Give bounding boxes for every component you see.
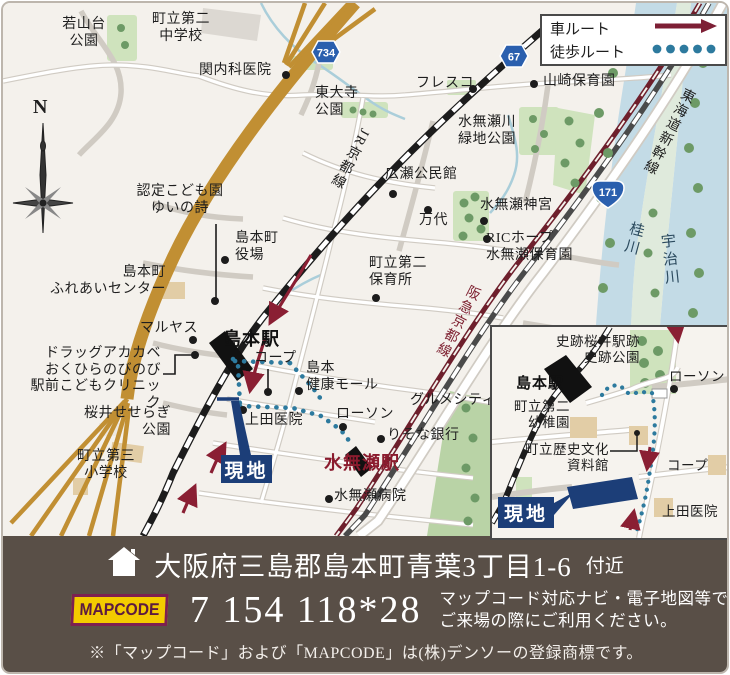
svg-text:67: 67 [508,52,520,64]
inset-shimamoto-station-label: 島本駅 [516,376,564,394]
inset-place-shiseki-park: 史跡桜井駅跡 史跡公園 [526,334,640,366]
place-maruyasu: マルヤス [140,321,198,338]
place-coop: コープ [254,351,297,368]
svg-text:734: 734 [317,48,336,60]
place-hirose-hall: 広瀬公民館 [385,167,458,184]
inset-place-rekishi-museum: 町立歴史文化 資料館 [502,442,609,474]
place-ueda-clinic: 上田医院 [245,413,303,430]
place-minase-hospital: 水無瀬病院 [334,489,407,506]
mapcode-usage-line2: ご来場の際にご利用ください。 [440,611,678,630]
route-shield-734: 734 [311,40,341,69]
compass-icon [13,123,73,233]
inset-site-label-box: 現地 [498,497,554,528]
minase-station-label: 水無瀬駅 [324,453,400,474]
place-daini-nursery: 町立第二 保育所 [369,256,427,289]
legend-car-label: 車ルート [550,18,610,39]
place-ric-hope-nursery: RICホープ 水無瀬保育園 [486,231,573,264]
mapcode-usage-line1: マップコード対応ナビ・電子地図等で [440,589,729,608]
trademark-note: ※「マップコード」および「MAPCODE」は(株)デンソーの登録商標です。 [3,639,729,663]
place-daisan-elementary: 町立第三 小学校 [67,449,145,482]
address-text: 大阪府三島郡島本町青葉3丁目1-6 [154,545,572,584]
mapcode-row: MAPCODE 7 154 118*28 マップコード対応ナビ・電子地図等でご来… [67,588,729,633]
place-yamazaki-nursery: 山崎保育園 [543,74,616,91]
place-minase-shrine: 水無瀬神宮 [480,198,553,215]
house-icon [108,547,140,582]
site-label-box: 現地 [221,455,272,483]
route-shield-67: 67 [499,44,529,73]
place-mandai: 万代 [419,213,448,230]
place-wakayamadai-park: 若山台 公園 [53,17,115,50]
map-frame: 734 67 171 N JR京都線 阪急京都線 東海道新幹線 桂川 宇治川 若… [1,1,729,674]
place-town-hall: 島本町 役場 [235,231,279,264]
shimamoto-station-label: 島本駅 [223,329,280,350]
compass-label: N [33,96,48,120]
mapcode-usage-text: マップコード対応ナビ・電子地図等でご来場の際にご利用ください。 [440,588,729,633]
place-gourmet-city: グルメシティ [410,393,496,410]
place-fresco: フレスコ [416,76,474,93]
route-legend: 車ルート 徒歩ルート [540,14,727,66]
svg-text:171: 171 [599,187,617,199]
place-minasegawa-green-park: 水無瀬川 緑地公園 [458,115,516,148]
place-risona-bank: りそな銀行 [387,428,460,445]
place-daini-junior-high: 町立第二 中学校 [141,12,221,45]
inset-place-lawson: ローソン [669,369,725,385]
walk-route-dots-icon [651,43,717,60]
main-map: 734 67 171 N JR京都線 阪急京都線 東海道新幹線 桂川 宇治川 若… [3,3,729,536]
place-seki-clinic: 関内科医院 [199,63,272,80]
route-shield-171: 171 [589,179,627,215]
mapcode-logo: MAPCODE [70,594,168,626]
address-suffix: 付近 [586,551,624,578]
mapcode-value: 7 154 118*28 [190,588,422,632]
inset-place-ueda-clinic: 上田医院 [662,504,718,520]
place-fureai-center: 島本町 ふれあいセンター [29,265,166,298]
place-kenko-mall: 島本 健康モール [306,361,379,394]
info-bar: 大阪府三島郡島本町青葉3丁目1-6 付近 MAPCODE 7 154 118*2… [3,536,729,672]
inset-place-yochien: 町立第二 幼稚園 [498,399,570,431]
legend-walk-label: 徒歩ルート [550,41,625,62]
place-sakurai-seseragi-park: 桜井せせらぎ 公園 [61,406,171,439]
address-row: 大阪府三島郡島本町青葉3丁目1-6 付近 [3,545,729,584]
access-map-flyer: 734 67 171 N JR京都線 阪急京都線 東海道新幹線 桂川 宇治川 若… [0,0,730,675]
place-lawson: ローソン [336,407,394,424]
car-route-arrow-icon [655,19,717,38]
inset-place-coop: コープ [667,458,708,474]
place-drug-akakabe-clinic: ドラッグアカカベ おくひらのびのび 駅前こどもクリニック [29,346,161,412]
inset-map: 史跡桜井駅跡 史跡公園 島本駅 町立第二 幼稚園 町立歴史文化 資料館 ローソン… [490,325,729,540]
place-nintei-kodomoen: 認定こども園 ゆいの詩 [131,184,229,217]
place-todaiji-park: 東大寺 公園 [315,86,359,119]
